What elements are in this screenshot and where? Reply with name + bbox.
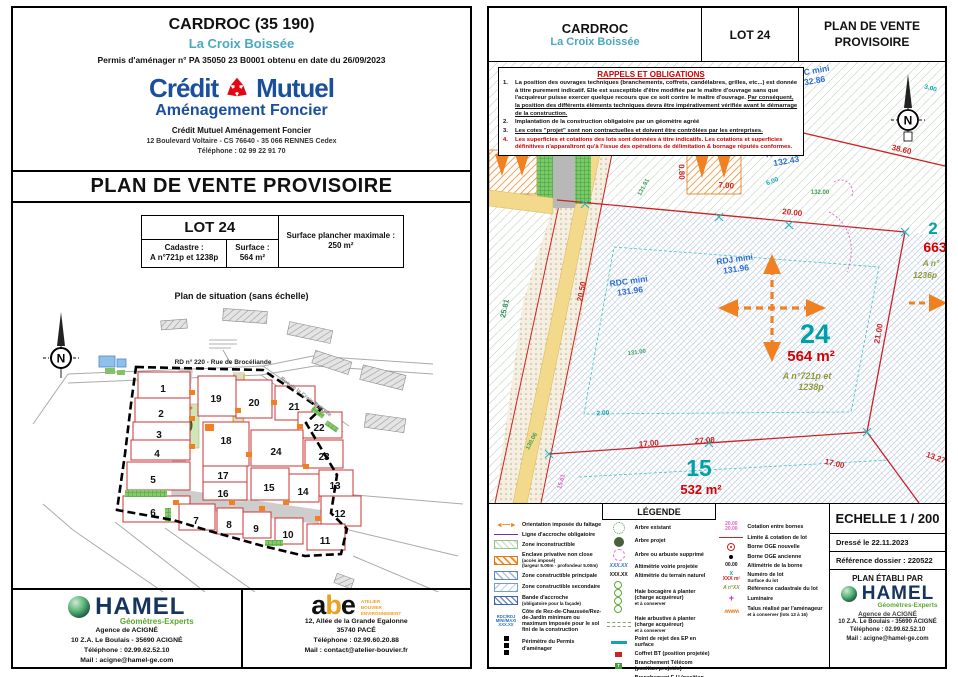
- cadastre-cell: Cadastre : A n°721p et 1238p: [142, 240, 227, 268]
- cadastre-value: A n°721p et 1238p: [150, 253, 218, 262]
- svg-text:17.00: 17.00: [639, 438, 660, 448]
- credit-mutuel-left: Crédit: [149, 73, 218, 104]
- svg-text:A n°721p et: A n°721p et: [782, 371, 833, 381]
- bande-accroche-icon: [494, 596, 518, 605]
- titleblock-address: 10 Z.A. Le Boulais - 35690 ACIGNÉ: [830, 618, 945, 626]
- svg-text:2.00: 2.00: [596, 410, 609, 418]
- haie-bocagere-icon: [606, 581, 632, 613]
- svg-text:2: 2: [158, 409, 164, 420]
- document-title-banner: PLAN DE VENTE PROVISOIRE: [13, 170, 470, 203]
- tree-removed-icon: [613, 549, 625, 561]
- floor-area-label: Surface plancher maximale :: [287, 231, 396, 240]
- svg-text:RD n° 220 - Rue de Brocéliand: RD n° 220 - Rue de Brocéliande: [175, 358, 272, 366]
- alti-voirie-icon: XXX.XX: [606, 564, 632, 569]
- hamel-box: HAMEL Géomètres-Experts Agence de ACIGNÉ…: [13, 590, 241, 667]
- svg-text:5: 5: [150, 475, 156, 486]
- credit-mutuel-emblem-icon: [222, 74, 252, 104]
- svg-text:3: 3: [156, 430, 162, 441]
- org-phone: Téléphone : 02 99 22 91 70: [13, 148, 470, 155]
- right-panel: CARDROC La Croix Boissée LOT 24 PLAN DE …: [487, 6, 947, 669]
- scale-label: ECHELLE 1 / 200: [830, 504, 945, 534]
- ridge-arrows-icon: ◄╌╌►: [496, 522, 516, 529]
- surface-value: 564 m²: [240, 253, 265, 262]
- org-name: Crédit Mutuel Aménagement Foncier: [13, 126, 470, 135]
- plan-de-vente-document: CARDROC (35 190) La Croix Boissée Permis…: [0, 0, 958, 677]
- alti-borne-icon: 00.00: [718, 563, 744, 568]
- svg-text:1236p: 1236p: [913, 270, 937, 280]
- svg-text:19: 19: [210, 394, 222, 405]
- file-reference: Référence dossier : 220522: [830, 552, 945, 570]
- legend-col-2: Arbre existant Arbre projet Arbre ou arb…: [606, 522, 715, 677]
- north-arrow-icon: N: [43, 312, 79, 378]
- svg-text:27.00: 27.00: [695, 435, 716, 445]
- hamel-phone: Téléphone : 02.99.62.52.10: [13, 646, 241, 656]
- titleblock-phone: Téléphone : 02.99.62.52.10: [830, 626, 945, 634]
- svg-text:1: 1: [160, 384, 166, 395]
- legend-col-3: 20.0020.00 Cotation entre bornes Limite …: [718, 522, 827, 677]
- floor-area-value: 250 m²: [328, 241, 353, 250]
- credit-mutuel-right: Mutuel: [256, 73, 334, 104]
- header-lot-cell: LOT 24: [702, 8, 799, 61]
- svg-text:9: 9: [253, 524, 259, 535]
- tree-existing-icon: [613, 522, 625, 534]
- rappels-title: RAPPELS ET OBLIGATIONS: [503, 70, 799, 79]
- svg-text:4: 4: [154, 449, 160, 460]
- title-block: ECHELLE 1 / 200 Dressé le 22.11.2023 Réf…: [830, 504, 945, 667]
- hamel-logo-icon: [841, 586, 857, 602]
- svg-text:22: 22: [313, 423, 325, 434]
- svg-text:20: 20: [248, 398, 260, 409]
- header-project-title: CARDROC: [562, 21, 628, 36]
- svg-text:21: 21: [288, 402, 300, 413]
- svg-text:1238p: 1238p: [798, 382, 824, 392]
- svg-text:24: 24: [800, 319, 830, 349]
- svg-text:532 m²: 532 m²: [680, 482, 722, 497]
- right-header: CARDROC La Croix Boissée LOT 24 PLAN DE …: [489, 8, 945, 62]
- enclave-icon: [494, 556, 518, 565]
- left-panel: CARDROC (35 190) La Croix Boissée Permis…: [11, 6, 472, 669]
- lot-number-cell: LOT 24: [142, 216, 279, 240]
- established-by-label: PLAN ÉTABLI PAR: [830, 574, 945, 583]
- rappels-box: RAPPELS ET OBLIGATIONS 1. La position de…: [498, 67, 804, 156]
- limite-lot-icon: [719, 537, 743, 538]
- svg-text:24: 24: [270, 447, 282, 458]
- svg-text:663: 663: [923, 239, 945, 255]
- svg-text:10: 10: [282, 530, 294, 541]
- zone-principale-icon: [494, 571, 518, 580]
- svg-text:A n°: A n°: [922, 258, 940, 268]
- permit-line: Permis d'aménager n° PA 35050 23 B0001 o…: [13, 55, 470, 65]
- cadastre-label: Cadastre :: [165, 243, 204, 252]
- org-address: 12 Boulevard Voltaire - CS 76640 - 35 06…: [13, 138, 470, 145]
- svg-text:14: 14: [297, 487, 309, 498]
- alti-terrain-icon: XXX.XX: [606, 573, 632, 578]
- hamel-address: 10 Z.A. Le Boulais - 35690 ACIGNÉ: [13, 636, 241, 646]
- svg-text:18: 18: [220, 436, 232, 447]
- svg-text:7: 7: [193, 516, 199, 527]
- svg-text:564 m²: 564 m²: [787, 348, 835, 365]
- constructible-zones: [541, 204, 945, 503]
- project-subtitle: La Croix Boissée: [13, 36, 470, 51]
- hamel-mail: Mail : acigne@hamel-ge.com: [13, 656, 241, 666]
- abe-box: abe ATELIER BOUVIER ENVIRONNEMENT 12, Al…: [241, 590, 471, 667]
- legend-title: LÉGENDE: [602, 503, 716, 520]
- left-header: CARDROC (35 190) La Croix Boissée Permis…: [13, 8, 470, 170]
- reference-cadastrale-icon: A n°XX: [718, 586, 744, 591]
- svg-text:16: 16: [217, 489, 229, 500]
- zone-inconstructible-icon: [494, 540, 518, 549]
- credit-mutuel-logo: Crédit Mutuel: [13, 73, 470, 104]
- svg-text:6: 6: [150, 508, 156, 519]
- header-project-cell: CARDROC La Croix Boissée: [489, 8, 702, 61]
- lot-summary-table: LOT 24 Surface plancher maximale : 250 m…: [141, 215, 404, 268]
- titleblock-agency: Agence de ACIGNÉ: [830, 611, 945, 618]
- tree-planned-icon: [614, 537, 624, 547]
- svg-text:7.00: 7.00: [718, 180, 735, 190]
- svg-text:15: 15: [263, 483, 275, 494]
- legend: LÉGENDE ◄╌╌►Orientation imposée du faîta…: [489, 504, 830, 667]
- zone-secondaire-icon: [494, 583, 518, 592]
- header-doc-cell: PLAN DE VENTE PROVISOIRE: [799, 8, 945, 61]
- hamel-agency: Agence de ACIGNÉ: [13, 626, 241, 636]
- svg-text:132.00: 132.00: [811, 190, 830, 196]
- surface-label: Surface :: [235, 243, 269, 252]
- cotation-bornes-icon: 20.0020.00: [718, 522, 744, 532]
- coffret-bt-icon: [615, 652, 622, 657]
- floor-area-cell: Surface plancher maximale : 250 m²: [278, 216, 404, 268]
- svg-text:17: 17: [217, 471, 229, 482]
- svg-text:11: 11: [320, 536, 331, 547]
- luminaire-icon: +: [718, 594, 744, 603]
- haie-arbustive-icon: [607, 622, 631, 627]
- talus-icon: ʌʌʌʌʌʌ: [724, 609, 738, 615]
- rappels-item-4: 4. Les superficies et cotations des lots…: [503, 137, 799, 152]
- titleblock-hamel-logo: HAMEL Géomètres-Experts: [830, 583, 945, 609]
- rappels-item-3: 3. Les cotes "projet" sont non contractu…: [503, 128, 799, 136]
- svg-text:8: 8: [226, 520, 232, 531]
- branchement-telecom-icon: T: [615, 663, 622, 669]
- abe-address: 12, Allée de la Grande Egalonne: [243, 617, 471, 627]
- svg-text:23: 23: [318, 452, 330, 463]
- accroche-line-icon: [494, 534, 518, 535]
- titleblock-mail: Mail : acigne@hamel-ge.com: [830, 635, 945, 643]
- left-footer: HAMEL Géomètres-Experts Agence de ACIGNÉ…: [13, 588, 470, 667]
- brand-subtitle: Aménagement Foncier: [13, 102, 470, 120]
- drawn-date: Dressé le 22.11.2023: [830, 534, 945, 552]
- svg-text:N: N: [904, 114, 913, 128]
- abe-logo: abe: [311, 595, 355, 617]
- perimetre-icon: [493, 636, 519, 655]
- situation-map: 1 2 3 4 5 6 7 8 9 10 11 12 13 14 15 16 1…: [13, 304, 470, 592]
- rdc-rdj-icon: RDC/RDJMINI/MAXIXXX.XX: [493, 615, 519, 628]
- surface-cell: Surface : 564 m²: [227, 240, 278, 268]
- svg-text:2: 2: [928, 219, 937, 238]
- rejet-ep-icon: [611, 641, 627, 644]
- svg-text:12: 12: [334, 509, 346, 520]
- svg-text:0.80: 0.80: [677, 164, 687, 180]
- hamel-logo-icon: [68, 596, 90, 618]
- svg-text:N: N: [57, 352, 66, 366]
- detail-plan: RDJ mini131.96 RDC mini131.96 RDC mini13…: [489, 62, 945, 503]
- borne-nouvelle-icon: [727, 543, 735, 551]
- header-project-subtitle: La Croix Boissée: [550, 36, 639, 48]
- svg-text:13: 13: [329, 481, 341, 492]
- svg-text:15: 15: [686, 455, 712, 481]
- rappels-item-1: 1. La position des ouvrages techniques (…: [503, 80, 799, 118]
- project-title: CARDROC (35 190): [13, 16, 470, 34]
- borne-ancienne-icon: [729, 555, 733, 559]
- situation-caption: Plan de situation (sans échelle): [13, 291, 470, 301]
- legend-col-1: ◄╌╌►Orientation imposée du faîtage Ligne…: [493, 522, 602, 677]
- abe-city: 35740 PACÉ: [243, 626, 471, 636]
- abe-phone: Téléphone : 02.99.60.20.88: [243, 636, 471, 646]
- numero-surface-icon: XXXX m²: [718, 572, 744, 582]
- abe-tagline: ATELIER BOUVIER ENVIRONNEMENT: [361, 599, 401, 616]
- rappels-item-2: 2. Implantation de la construction oblig…: [503, 119, 799, 127]
- right-bottom: LÉGENDE ◄╌╌►Orientation imposée du faîta…: [489, 503, 945, 667]
- abe-mail: Mail : contact@atelier-bouvier.fr: [243, 646, 471, 656]
